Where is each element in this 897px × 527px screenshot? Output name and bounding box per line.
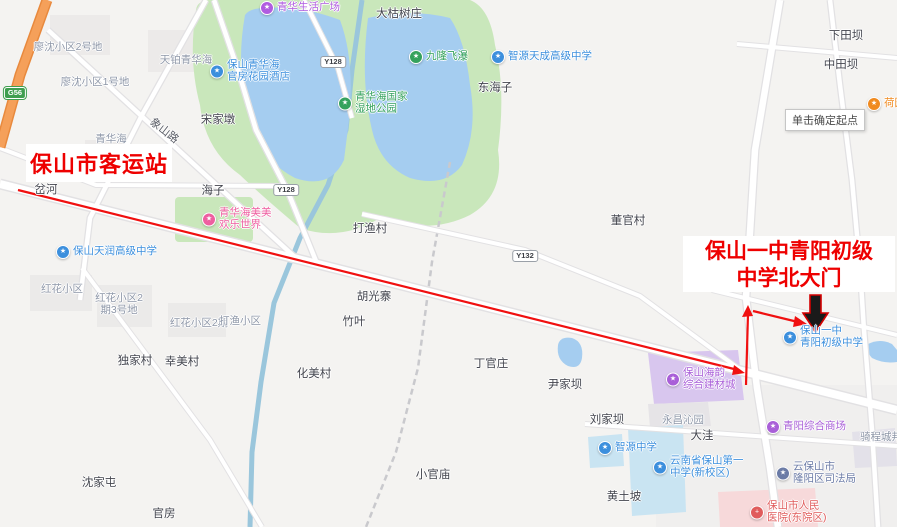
school-icon: ★ bbox=[653, 460, 667, 474]
poi-qinghua-life-plaza[interactable]: ★青华生活广场 bbox=[260, 1, 340, 15]
label-xingmeicun: 幸美村 bbox=[165, 356, 200, 368]
label-dakushuzhuang: 大枯树庄 bbox=[376, 8, 422, 20]
label-dayu-block: 打渔小区 bbox=[219, 315, 261, 327]
school-icon: ★ bbox=[491, 50, 505, 64]
label-donghaizi: 东海子 bbox=[478, 82, 513, 94]
label-tianbo-qinghuahai: 天铂青华海 bbox=[160, 54, 213, 66]
poi-label: 云南省保山第一中学(新校区) bbox=[670, 456, 744, 479]
hotel-icon: ★ bbox=[210, 64, 224, 78]
label-xiaoguanmiao: 小官庙 bbox=[416, 469, 451, 481]
label-shenjiatun: 沈家屯 bbox=[82, 477, 117, 489]
destination-annotation-text: 保山一中青阳初级 中学北大门 bbox=[705, 237, 873, 291]
poi-label: 青阳综合商场 bbox=[783, 421, 846, 433]
hospital-icon: + bbox=[750, 505, 764, 519]
label-liaoshen-block1: 廖沈小区1号地 bbox=[61, 76, 130, 88]
poi-label: 云保山市隆阳区司法局 bbox=[793, 462, 856, 485]
label-songjiadun: 宋家墩 bbox=[201, 114, 236, 126]
poi-baoshan-yizhong-qingyang[interactable]: ★保山一中青阳初级中学 bbox=[783, 326, 863, 349]
expressway-g56 bbox=[0, 0, 47, 147]
poi-tianrun-school[interactable]: ★保山天润高级中学 bbox=[56, 245, 157, 259]
label-zhongtianba: 中田坝 bbox=[824, 59, 859, 71]
poi-label: 保山天润高级中学 bbox=[73, 246, 157, 258]
label-huguangzhai: 胡光寨 bbox=[357, 291, 392, 303]
poi-qingyang-mall[interactable]: ★青阳综合商场 bbox=[766, 420, 846, 434]
label-zhuye: 竹叶 bbox=[343, 316, 366, 328]
poi-zhiyuan-middle-school[interactable]: ★智源中学 bbox=[598, 441, 657, 455]
poi-label: 九隆飞瀑 bbox=[426, 51, 468, 63]
label-yinjiaba: 尹家坝 bbox=[548, 379, 583, 391]
market-icon: ★ bbox=[666, 372, 680, 386]
poi-jiulong-waterfall[interactable]: ★九隆飞瀑 bbox=[409, 50, 468, 64]
set-start-tooltip: 单击确定起点 bbox=[785, 109, 865, 131]
badge-y128-north: Y128 bbox=[320, 56, 346, 68]
label-dingguanzhuang: 丁官庄 bbox=[474, 358, 509, 370]
label-huangtupo: 黄土坡 bbox=[607, 491, 642, 503]
label-liaoshen-block2: 廖沈小区2号地 bbox=[34, 41, 103, 53]
badge-y128-south: Y128 bbox=[273, 184, 299, 196]
park-icon: ★ bbox=[338, 96, 352, 110]
label-honghua-block2-3: 红花小区2期3号地 bbox=[95, 292, 143, 316]
poi-label: 智源天成高级中学 bbox=[508, 51, 592, 63]
start-annotation-text: 保山市客运站 bbox=[30, 147, 168, 179]
poi-label: 荷园 bbox=[884, 98, 897, 110]
school-icon: ★ bbox=[56, 245, 70, 259]
label-dongguancun: 董官村 bbox=[611, 215, 646, 227]
badge-g56: G56 bbox=[4, 87, 26, 99]
poi-meimei-funworld[interactable]: ★青华海美美欢乐世界 bbox=[202, 208, 272, 231]
poi-baoshan-qinghuahai-hotel[interactable]: ★保山青华海官房花园酒店 bbox=[210, 60, 290, 83]
poi-zhiyuan-tiancheng-school[interactable]: ★智源天成高级中学 bbox=[491, 50, 592, 64]
poi-label: 青华海美美欢乐世界 bbox=[219, 208, 272, 231]
poi-label: 青华生活广场 bbox=[277, 2, 340, 14]
label-chahe: 岔河 bbox=[35, 184, 58, 196]
shopping-mall-icon: ★ bbox=[766, 420, 780, 434]
label-haizi: 海子 bbox=[202, 185, 225, 197]
poi-peoples-hospital[interactable]: +保山市人民医院(东院区) bbox=[750, 501, 827, 524]
poi-label: 青华海国家湿地公园 bbox=[355, 92, 408, 115]
badge-y132: Y132 bbox=[512, 250, 538, 262]
start-annotation-label: 保山市客运站 bbox=[26, 144, 172, 182]
poi-label: 保山青华海官房花园酒店 bbox=[227, 60, 290, 83]
label-dujiacun: 独家村 bbox=[118, 355, 153, 367]
scenic-icon: ★ bbox=[409, 50, 423, 64]
shopping-plaza-icon: ★ bbox=[260, 1, 274, 15]
poi-label: 保山海韵综合建材城 bbox=[683, 368, 736, 391]
school-icon: ★ bbox=[598, 441, 612, 455]
poi-orange-clipped[interactable]: ★荷园 bbox=[867, 97, 897, 111]
label-dawa: 大洼 bbox=[691, 430, 714, 442]
poi-longyang-justice-bureau[interactable]: ★云保山市隆阳区司法局 bbox=[776, 462, 856, 485]
pond bbox=[868, 341, 897, 363]
map-canvas[interactable]: 廖沈小区2号地廖沈小区1号地天铂青华海青华海★青华生活广场★保山青华海官房花园酒… bbox=[0, 0, 897, 527]
label-dayucun: 打渔村 bbox=[353, 223, 388, 235]
label-xiatianba: 下田坝 bbox=[829, 30, 864, 42]
school-icon: ★ bbox=[783, 330, 797, 344]
label-liujiaba: 刘家坝 bbox=[590, 414, 625, 426]
label-guanfang: 官房 bbox=[153, 508, 176, 520]
poi-label: 保山一中青阳初级中学 bbox=[800, 326, 863, 349]
label-qichengchengbang: 骑程城邦 bbox=[860, 431, 897, 443]
label-yongchang-qinyuan: 永昌沁园 bbox=[662, 414, 704, 426]
pond bbox=[558, 338, 583, 367]
poi-wetland-park[interactable]: ★青华海国家湿地公园 bbox=[338, 92, 408, 115]
poi-label: 智源中学 bbox=[615, 442, 657, 454]
government-icon: ★ bbox=[776, 466, 790, 480]
poi-icon: ★ bbox=[867, 97, 881, 111]
label-honghua-block: 红花小区 bbox=[41, 283, 83, 295]
poi-baoshan-no1-school[interactable]: ★云南省保山第一中学(新校区) bbox=[653, 456, 744, 479]
destination-annotation-label: 保山一中青阳初级 中学北大门 bbox=[683, 236, 895, 292]
amusement-icon: ★ bbox=[202, 212, 216, 226]
poi-haiyun-building-city[interactable]: ★保山海韵综合建材城 bbox=[666, 368, 736, 391]
poi-label: 保山市人民医院(东院区) bbox=[767, 501, 827, 524]
label-huameicun: 化美村 bbox=[297, 368, 332, 380]
